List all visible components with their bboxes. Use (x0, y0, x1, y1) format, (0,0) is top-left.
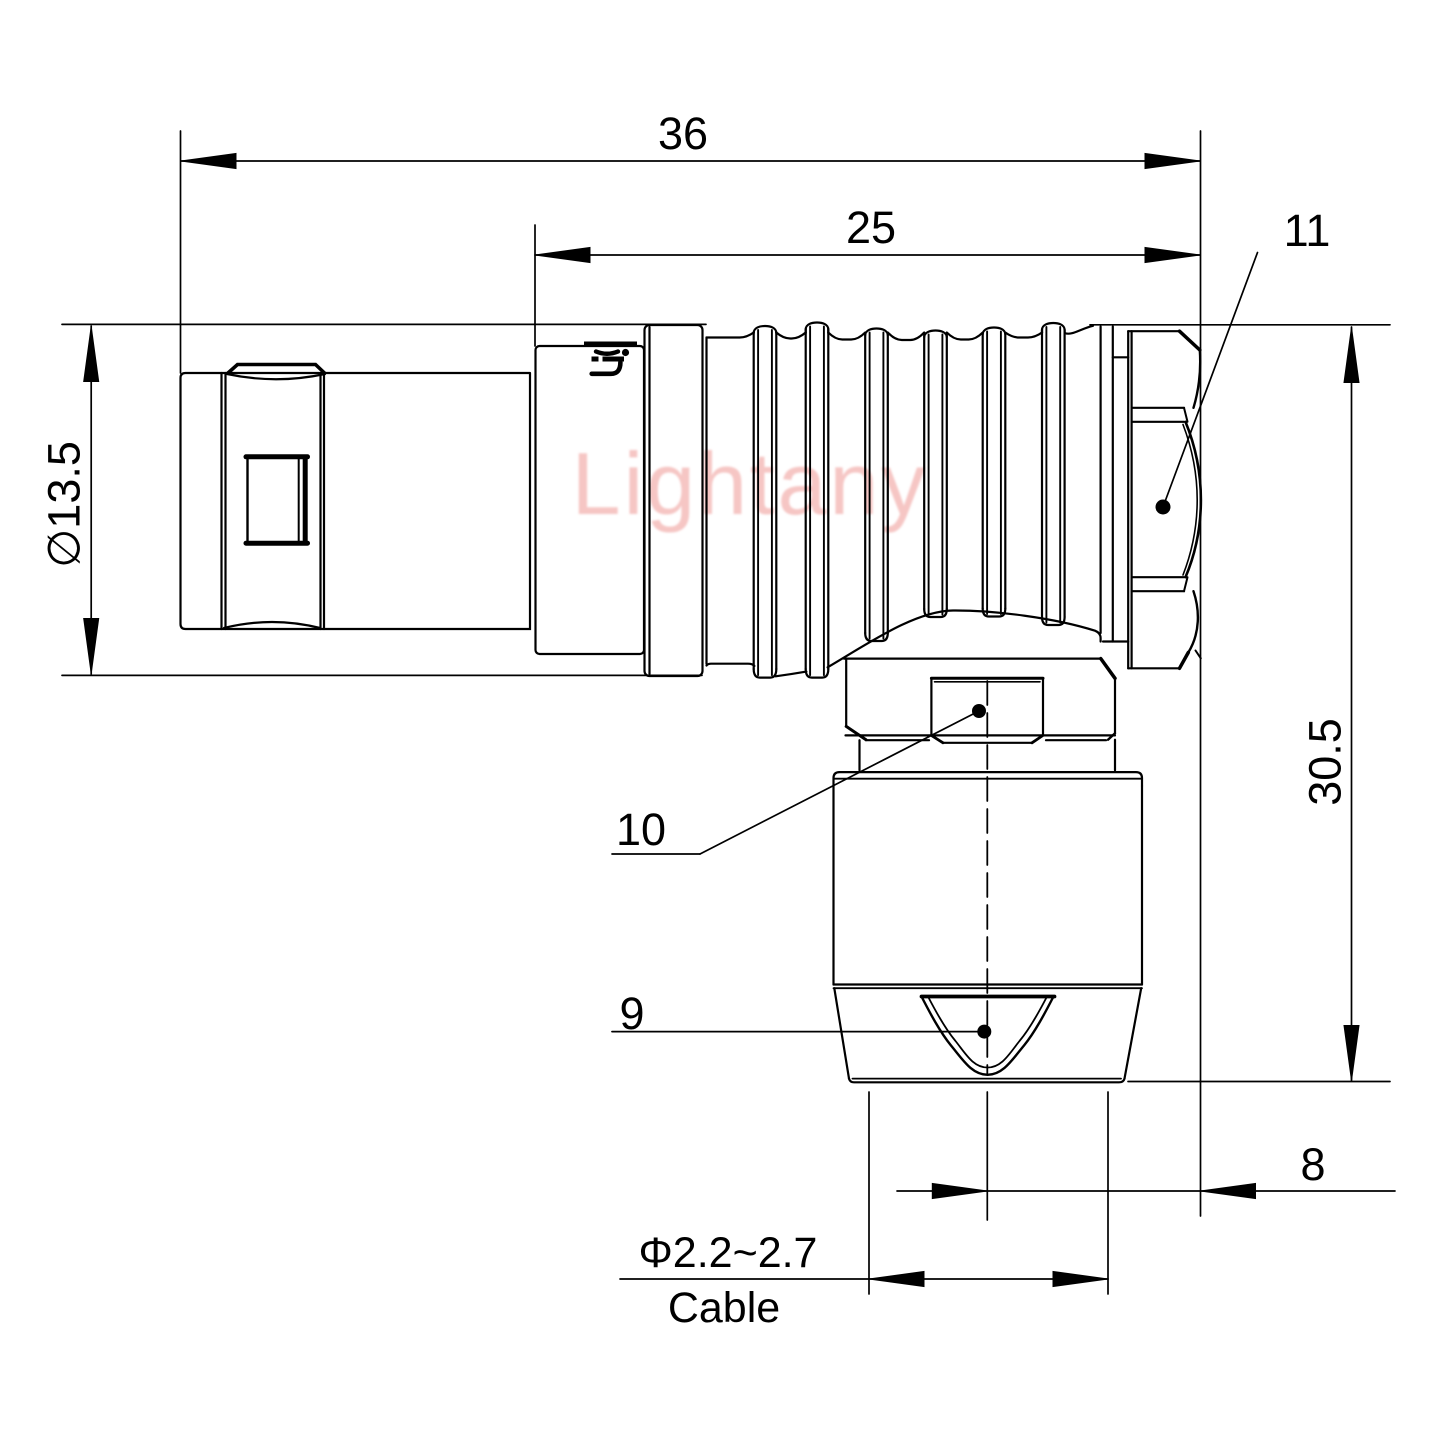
svg-text:Lightany: Lightany (572, 434, 929, 533)
svg-text:∅13.5: ∅13.5 (39, 441, 90, 568)
svg-text:Cable: Cable (668, 1284, 780, 1332)
svg-text:30.5: 30.5 (1300, 718, 1351, 806)
svg-text:11: 11 (1284, 205, 1331, 256)
svg-text:25: 25 (846, 202, 896, 253)
svg-text:10: 10 (616, 804, 666, 855)
svg-text:8: 8 (1300, 1139, 1325, 1190)
svg-text:9: 9 (619, 988, 644, 1039)
svg-text:Φ2.2~2.7: Φ2.2~2.7 (639, 1229, 818, 1277)
svg-text:36: 36 (658, 108, 708, 159)
